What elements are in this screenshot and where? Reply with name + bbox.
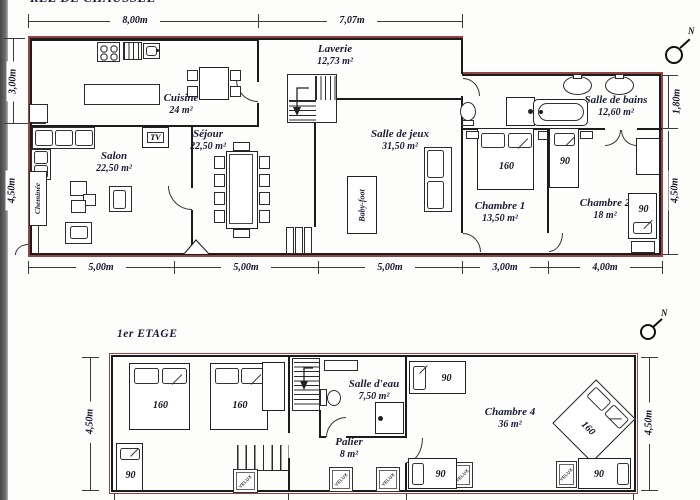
stair-direction-arrow [297, 88, 309, 109]
stair-direction-arrow [304, 368, 313, 383]
stair-arrow-head [300, 381, 308, 390]
entry-door-triangle [184, 240, 209, 254]
annotations-layer [0, 0, 700, 500]
stair-arrow-head [293, 107, 301, 116]
floor-plan-canvas: REZ DE CHAUSSEE 8,00m 7,07m 3,00m 4,50m … [0, 0, 700, 500]
